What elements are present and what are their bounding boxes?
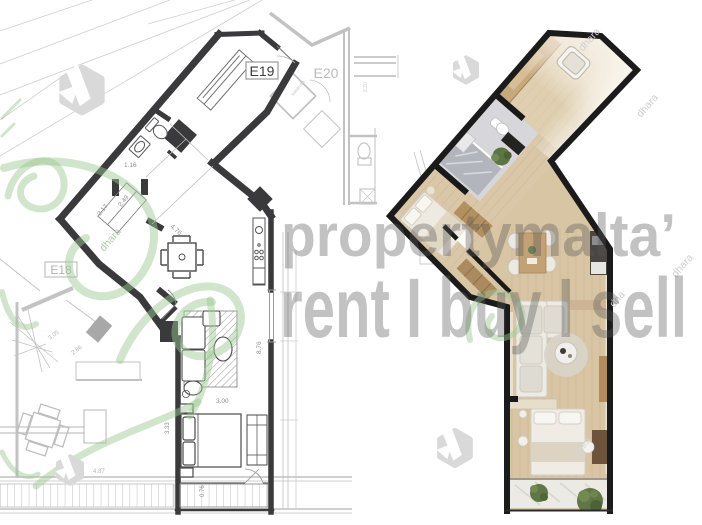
svg-text:4.87: 4.87 xyxy=(93,469,105,475)
svg-text:8.76: 8.76 xyxy=(256,341,263,354)
svg-text:2.20: 2.20 xyxy=(363,82,369,92)
svg-text:3.00: 3.00 xyxy=(216,398,229,405)
svg-text:1.16: 1.16 xyxy=(124,162,137,169)
svg-text:3.33: 3.33 xyxy=(165,422,171,434)
svg-text:rent I buy I sell: rent I buy I sell xyxy=(280,261,687,355)
svg-text:0.76: 0.76 xyxy=(200,485,206,497)
svg-text:propertymalta’: propertymalta’ xyxy=(281,202,676,269)
svg-text:E19: E19 xyxy=(250,63,275,79)
svg-text:E20: E20 xyxy=(314,65,339,81)
